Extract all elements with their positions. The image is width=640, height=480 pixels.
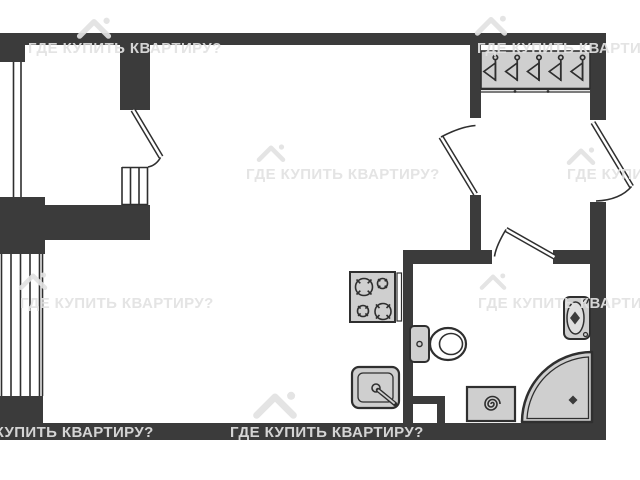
bathroom-door	[495, 230, 555, 258]
floor-plan: ГДЕ КУПИТЬ КВАРТИРУ? ГДЕ КУПИТЬ КВАРТИРУ…	[0, 0, 640, 480]
house-icon	[479, 272, 507, 291]
stove	[350, 272, 402, 322]
house-icon	[566, 146, 596, 166]
watermark-text: ГДЕ КУПИТЬ КВАРТИРУ?	[477, 40, 640, 57]
washing-machine	[467, 387, 515, 421]
window-balcony-left	[14, 62, 22, 197]
house-icon	[474, 14, 508, 37]
house-icon	[256, 143, 286, 163]
watermark-text: ГДЕ КУПИТЬ КВАРТИРУ?	[28, 40, 222, 57]
watermark-text: ГДЕ КУПИТЬ КВАРТИРУ?	[246, 166, 440, 183]
house-icon	[252, 390, 298, 420]
entry-door	[593, 123, 632, 202]
kitchen-sink	[352, 367, 399, 408]
watermark-text: ГДЕ КУПИТЬ КВАРТИРУ?	[567, 166, 640, 183]
house-icon	[18, 271, 48, 291]
watermark-text: ГДЕ КУПИТЬ КВАРТИРУ?	[0, 424, 154, 441]
house-icon	[76, 16, 112, 40]
toilet	[410, 326, 466, 362]
shower	[522, 352, 592, 422]
watermark-text: ГДЕ КУПИТЬ КВАРТИРУ?	[20, 295, 214, 312]
room-door	[441, 126, 476, 195]
plan-graphics	[0, 0, 640, 480]
balcony-door	[133, 110, 161, 167]
watermark-text: ГДЕ КУПИТЬ КВАРТИРУ?	[478, 295, 640, 312]
window-balcony-partition	[122, 167, 148, 205]
watermark-text: ГДЕ КУПИТЬ КВАРТИРУ?	[230, 424, 424, 441]
wardrobe	[481, 51, 590, 93]
